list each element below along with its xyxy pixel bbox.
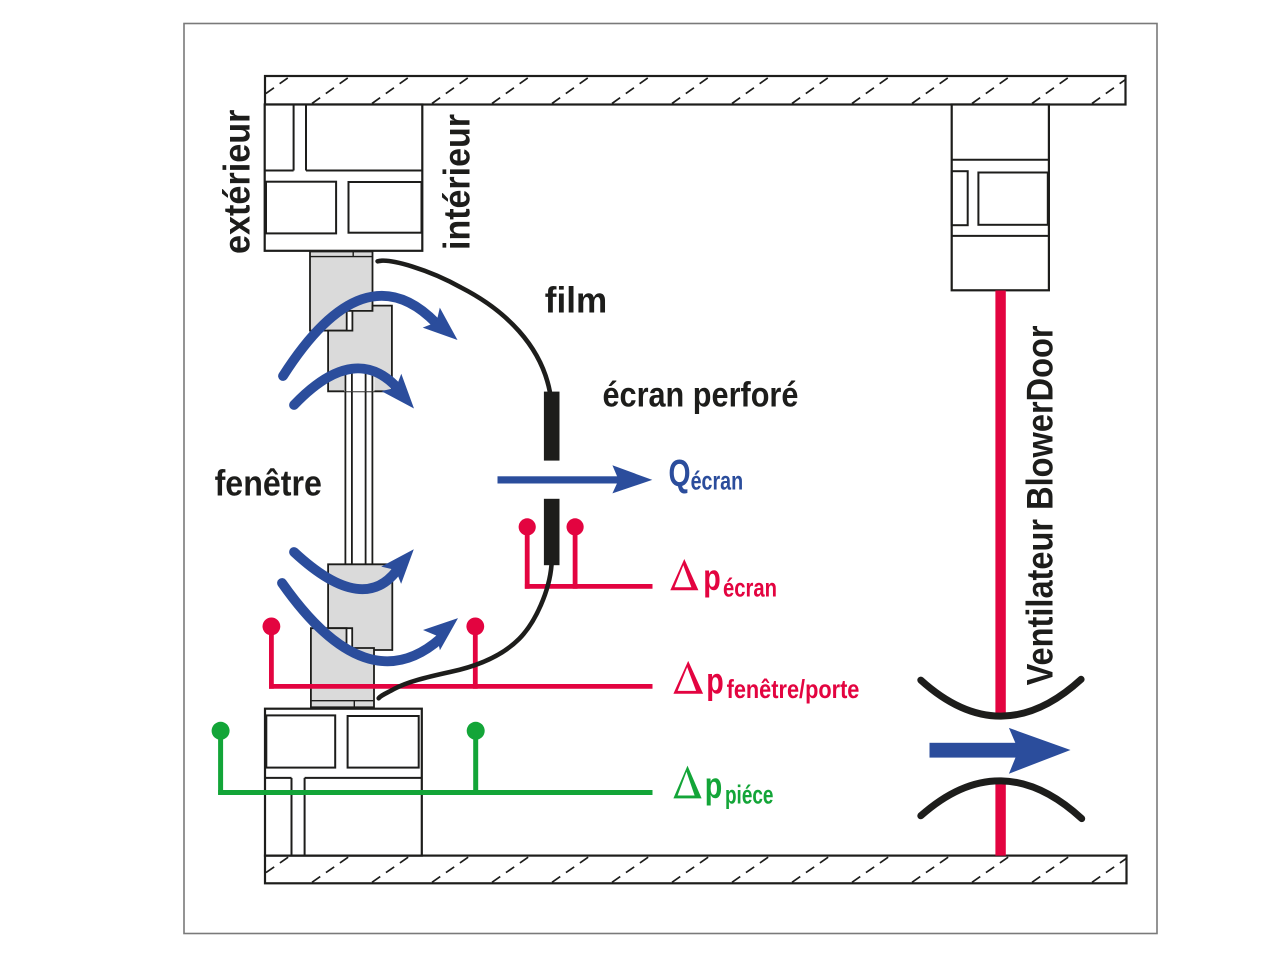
svg-text:écran: écran bbox=[723, 572, 777, 602]
svg-text:Q: Q bbox=[669, 453, 691, 495]
svg-text:écran: écran bbox=[691, 466, 744, 496]
svg-text:p: p bbox=[705, 765, 723, 806]
svg-text:intérieur: intérieur bbox=[437, 114, 478, 250]
svg-text:fenêtre/porte: fenêtre/porte bbox=[727, 674, 860, 704]
svg-text:Ventilateur BlowerDoor: Ventilateur BlowerDoor bbox=[1020, 325, 1061, 685]
svg-text:p: p bbox=[706, 661, 724, 702]
svg-text:piéce: piéce bbox=[725, 779, 773, 809]
svg-text:p: p bbox=[703, 557, 721, 598]
svg-text:film: film bbox=[545, 280, 607, 321]
svg-text:fenêtre: fenêtre bbox=[215, 463, 322, 504]
svg-text:écran perforé: écran perforé bbox=[603, 376, 799, 415]
svg-text:extérieur: extérieur bbox=[217, 110, 258, 255]
